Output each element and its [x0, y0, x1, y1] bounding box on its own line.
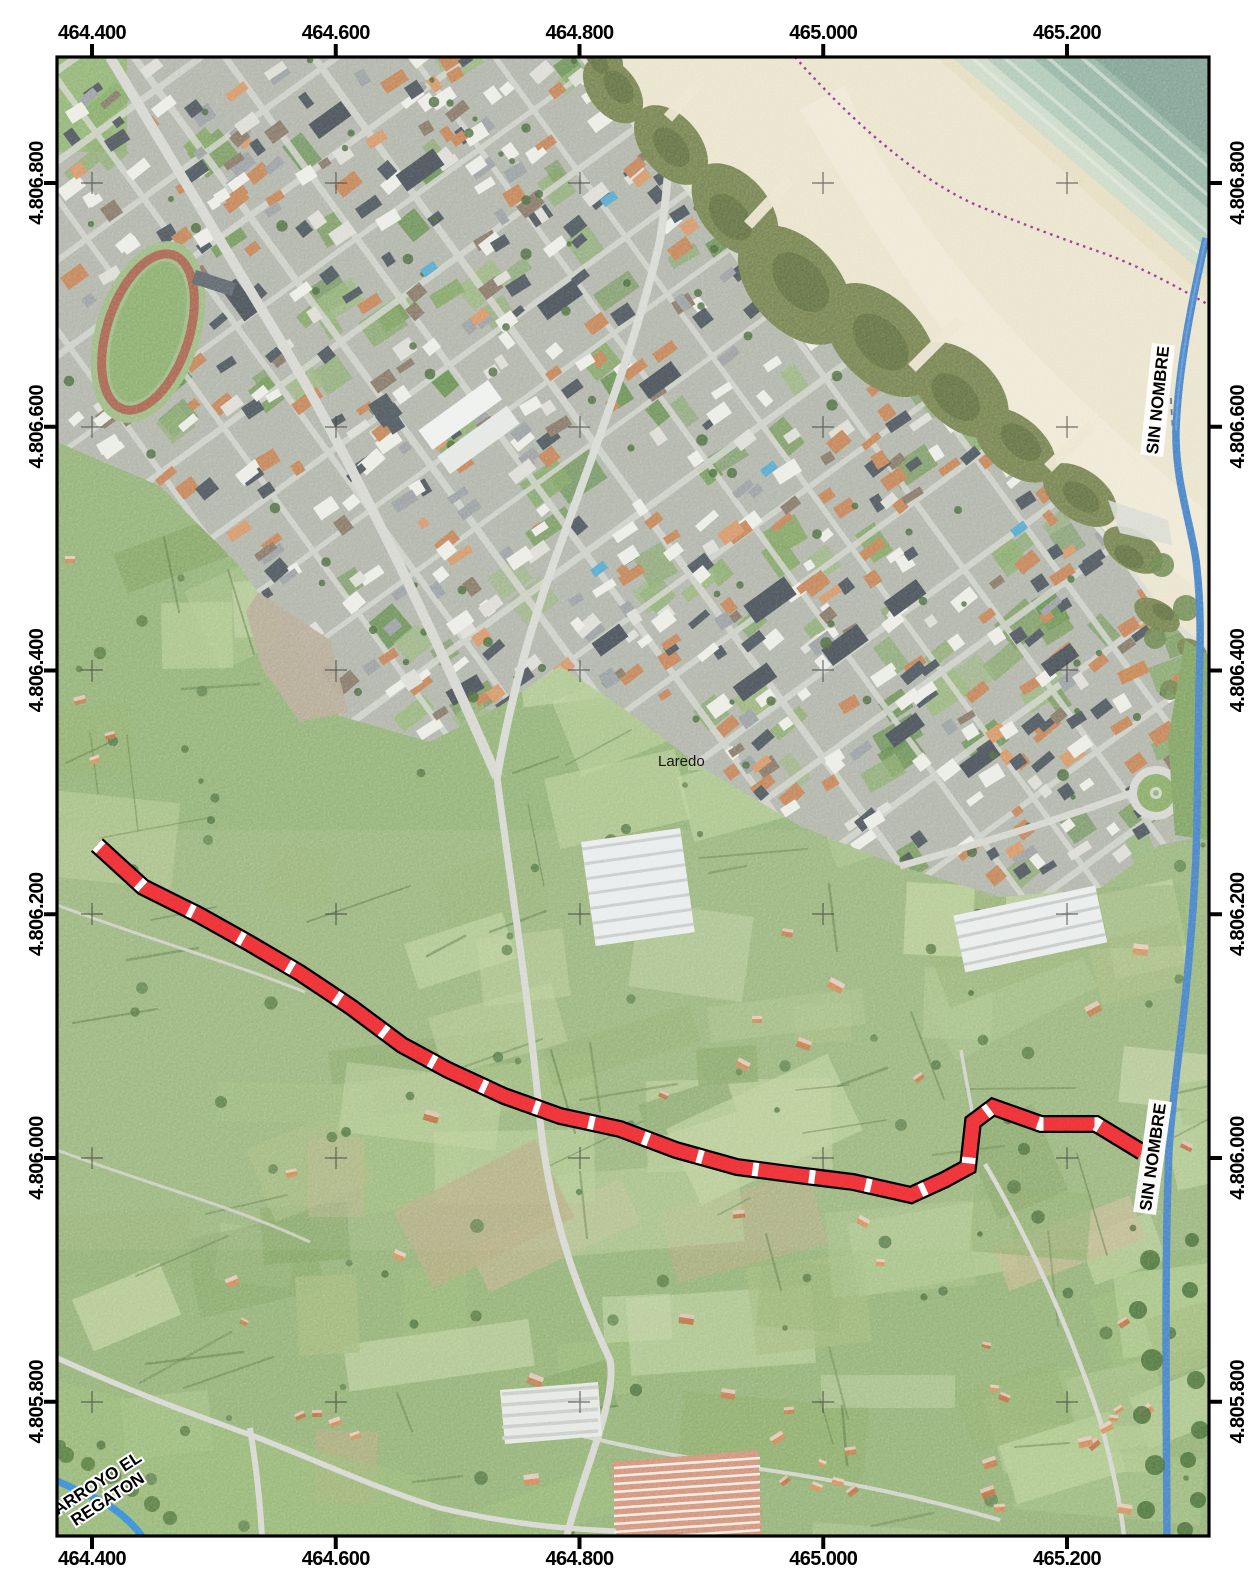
svg-text:465.000: 465.000	[789, 22, 858, 44]
svg-text:465.200: 465.200	[1033, 22, 1102, 44]
svg-text:464.600: 464.600	[302, 1548, 371, 1570]
svg-text:464.400: 464.400	[58, 22, 127, 44]
svg-text:464.800: 464.800	[545, 22, 614, 44]
svg-text:464.400: 464.400	[58, 1548, 127, 1570]
svg-text:4.806.800: 4.806.800	[1227, 141, 1249, 225]
svg-text:4.806.200: 4.806.200	[1227, 872, 1249, 956]
svg-text:4.806.000: 4.806.000	[26, 1116, 48, 1200]
svg-text:4.806.600: 4.806.600	[1227, 384, 1249, 468]
svg-text:4.806.400: 4.806.400	[1227, 628, 1249, 712]
svg-text:4.806.400: 4.806.400	[26, 628, 48, 712]
svg-text:4.806.000: 4.806.000	[1227, 1116, 1249, 1200]
svg-text:4.805.800: 4.805.800	[26, 1359, 48, 1443]
svg-text:465.200: 465.200	[1033, 1548, 1102, 1570]
svg-text:464.600: 464.600	[302, 22, 371, 44]
svg-text:464.800: 464.800	[545, 1548, 614, 1570]
svg-text:4.806.200: 4.806.200	[26, 872, 48, 956]
svg-text:465.000: 465.000	[789, 1548, 858, 1570]
svg-text:4.805.800: 4.805.800	[1227, 1359, 1249, 1443]
svg-text:4.806.800: 4.806.800	[26, 141, 48, 225]
svg-text:4.806.600: 4.806.600	[26, 384, 48, 468]
